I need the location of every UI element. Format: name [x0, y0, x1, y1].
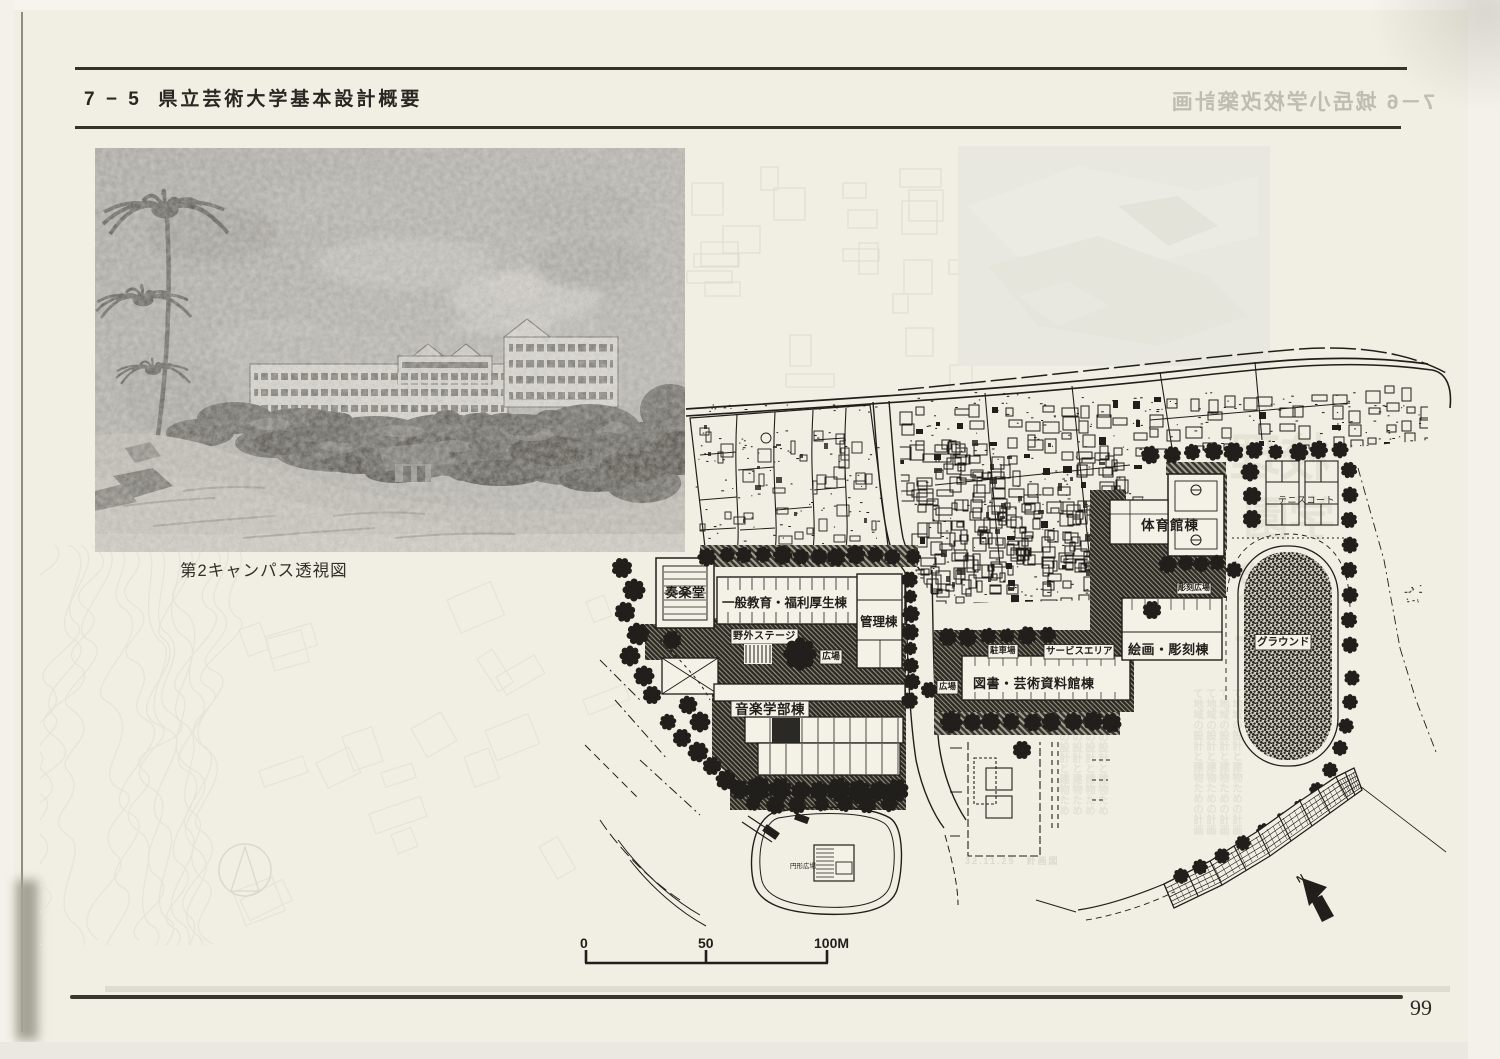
svg-text:32.11.25 計画図: 32.11.25 計画図 — [965, 855, 1060, 866]
svg-text:奏楽堂: 奏楽堂 — [664, 585, 706, 600]
svg-text:て地域の設計と建物ための計画: て地域の設計と建物ための計画 — [1205, 688, 1217, 836]
svg-text:テニスコート: テニスコート — [1278, 495, 1335, 505]
svg-text:彫刻広場: 彫刻広場 — [1177, 582, 1210, 592]
svg-text:広場: 広場 — [939, 681, 957, 691]
svg-text:て地域の設計と建物ための計画: て地域の設計と建物ための計画 — [1231, 688, 1243, 836]
svg-text:音楽学部棟: 音楽学部棟 — [735, 701, 805, 717]
svg-text:体育館棟: 体育館棟 — [1141, 517, 1199, 533]
svg-text:駐車場: 駐車場 — [990, 645, 1016, 655]
svg-text:0: 0 — [580, 935, 588, 951]
svg-text:野外ステージ: 野外ステージ — [733, 629, 796, 642]
svg-text:一般教育・福利厚生棟: 一般教育・福利厚生棟 — [722, 595, 848, 610]
svg-text:100M: 100M — [814, 935, 849, 951]
svg-text:50: 50 — [698, 935, 714, 951]
svg-text:絵画・彫刻棟: 絵画・彫刻棟 — [1128, 642, 1210, 657]
svg-text:管理棟: 管理棟 — [860, 614, 898, 629]
svg-text:図書・芸術資料館棟: 図書・芸術資料館棟 — [973, 676, 1095, 691]
svg-text:て地域の設計と建物ための計画: て地域の設計と建物ための計画 — [1218, 688, 1230, 836]
svg-text:て地域の設計と建物ための計画: て地域の設計と建物ための計画 — [1192, 688, 1204, 836]
svg-text:円形広場: 円形広場 — [790, 861, 817, 870]
svg-text:グラウンド: グラウンド — [1257, 635, 1310, 648]
svg-text:広場: 広場 — [822, 650, 840, 661]
svg-text:サービスエリア: サービスエリア — [1046, 645, 1113, 657]
